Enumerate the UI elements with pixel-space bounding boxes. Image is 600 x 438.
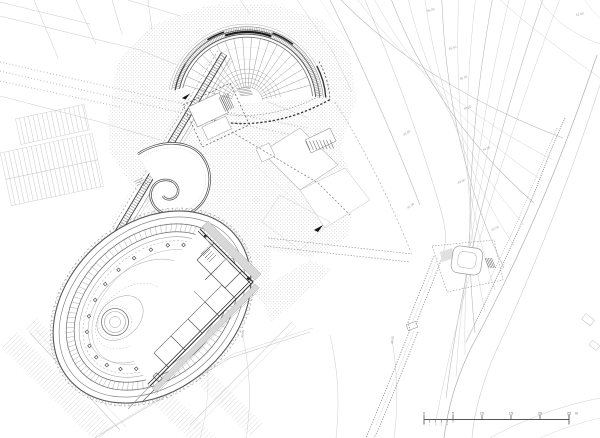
scale-bar-minor-label: 3 bbox=[441, 423, 443, 427]
contour-elevation-label: 44.00 bbox=[482, 145, 491, 152]
contour-elevation-label: 40.50 bbox=[390, 336, 395, 345]
parking-north bbox=[0, 104, 103, 206]
plaza-southeast bbox=[432, 240, 503, 292]
scale-bar: 0 5 10 15 20 25 m 1 2 3 4 bbox=[423, 411, 579, 427]
contour-elevation-label: 43.50 bbox=[457, 178, 466, 185]
scale-bar-label: 20 bbox=[538, 411, 543, 416]
site-plan-drawing: 46.00 45.50 45.00 44.50 44.00 43.50 43.0… bbox=[0, 0, 600, 438]
contour-elevation-label: 41.00 bbox=[240, 329, 245, 338]
scale-bar-minor-label: 2 bbox=[435, 423, 437, 427]
scale-bar-label: 15 bbox=[509, 411, 514, 416]
contour-elevation-label: 41.50 bbox=[406, 202, 415, 210]
scale-bar-label: 10 bbox=[480, 411, 485, 416]
contour-elevation-label: 46.00 bbox=[426, 7, 435, 13]
contours-south bbox=[200, 332, 600, 438]
scale-bar-minor-label: 4 bbox=[446, 423, 448, 427]
scale-bar-minor-label: 1 bbox=[429, 423, 431, 427]
contour-elevation-label: 42.00 bbox=[491, 225, 500, 232]
site-plan-canvas: 46.00 45.50 45.00 44.50 44.00 43.50 43.0… bbox=[0, 0, 600, 438]
contour-elevation-label: 42.50 bbox=[575, 11, 584, 17]
scale-bar-label: 0 bbox=[423, 411, 426, 416]
scale-bar-unit: m bbox=[575, 411, 579, 416]
contour-elevation-label: 45.50 bbox=[448, 45, 457, 51]
scale-bar-label: 25 bbox=[567, 411, 572, 416]
contour-elevation-label: 45.00 bbox=[459, 75, 468, 81]
scale-bar-label: 5 bbox=[452, 411, 455, 416]
